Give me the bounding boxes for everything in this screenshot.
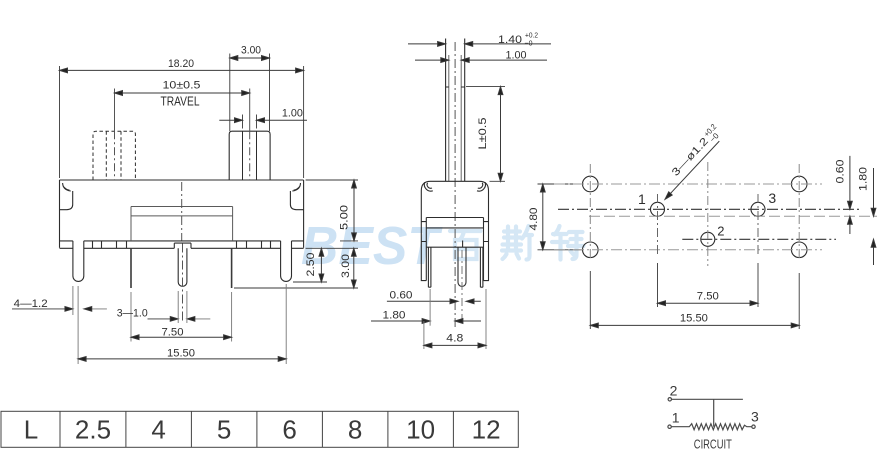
svg-text:CIRCUIT: CIRCUIT (694, 437, 732, 452)
svg-text:4.80: 4.80 (528, 208, 540, 231)
svg-text:6: 6 (282, 415, 296, 445)
svg-text:1: 1 (672, 409, 680, 425)
svg-text:7.50: 7.50 (697, 291, 719, 303)
svg-text:3—1.0: 3—1.0 (117, 308, 148, 320)
svg-text:2: 2 (717, 224, 724, 239)
svg-text:18.20: 18.20 (168, 58, 194, 70)
svg-text:TRAVEL: TRAVEL (161, 95, 200, 109)
svg-text:4—1.2: 4—1.2 (14, 298, 48, 310)
svg-text:L±0.5: L±0.5 (477, 118, 489, 150)
svg-text:1.80: 1.80 (858, 167, 870, 191)
svg-text:3: 3 (768, 190, 776, 206)
svg-text:4: 4 (151, 415, 165, 445)
svg-text:1.80: 1.80 (383, 309, 406, 321)
svg-text:15.50: 15.50 (680, 313, 708, 325)
svg-text:7.50: 7.50 (162, 327, 184, 339)
svg-text:8: 8 (348, 415, 362, 445)
svg-text:15.50: 15.50 (167, 348, 195, 360)
svg-text:3: 3 (751, 408, 759, 424)
svg-text:5.00: 5.00 (339, 205, 351, 230)
svg-text:3.00: 3.00 (241, 45, 261, 57)
svg-text:1: 1 (638, 191, 646, 207)
svg-text:L: L (24, 415, 38, 445)
svg-text:1.40: 1.40 (498, 34, 522, 46)
svg-text:10±0.5: 10±0.5 (163, 80, 201, 92)
svg-text:2.50: 2.50 (305, 253, 317, 277)
svg-text:10: 10 (406, 415, 435, 445)
svg-text:2.5: 2.5 (75, 415, 111, 445)
svg-text:3.00: 3.00 (340, 254, 352, 278)
svg-text:1.00: 1.00 (506, 50, 527, 62)
svg-text:12: 12 (472, 415, 501, 445)
svg-text:−0: −0 (525, 39, 533, 48)
svg-text:2: 2 (670, 383, 678, 399)
svg-text:0.60: 0.60 (835, 160, 847, 184)
svg-text:0.60: 0.60 (390, 290, 413, 302)
svg-text:5: 5 (217, 415, 231, 445)
svg-text:1.00: 1.00 (282, 108, 303, 120)
svg-text:4.8: 4.8 (446, 333, 463, 345)
